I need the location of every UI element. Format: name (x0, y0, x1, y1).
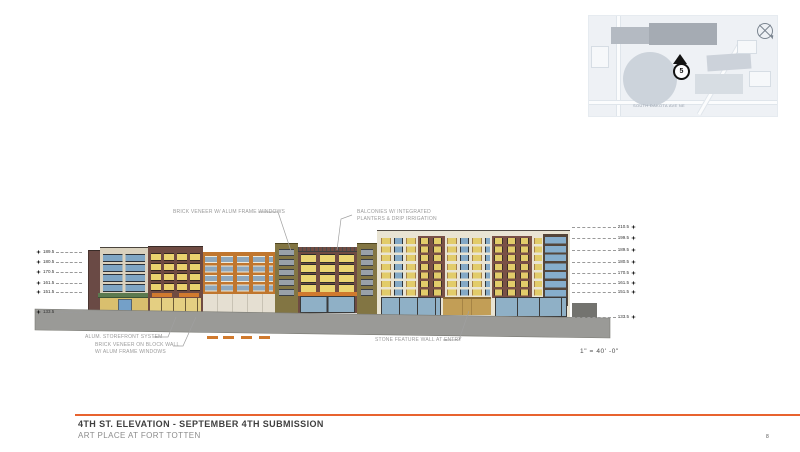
annotation-stone-wall: STONE FEATURE WALL AT ENTRY (375, 337, 462, 344)
level-marker-icon (631, 248, 636, 253)
wood-entry-feature (443, 297, 491, 315)
annotation-balconies: BALCONIES W/ INTEGRATED PLANTERS & DRIP … (357, 209, 449, 223)
orange-awning (223, 336, 234, 339)
map-pin-icon: 5 (673, 63, 690, 80)
ground-floor (377, 297, 570, 317)
annotation-storefront: ALUM. STOREFRONT SYSTEM (85, 334, 162, 341)
window-grid (205, 256, 273, 294)
level-marker-icon (36, 310, 41, 315)
annotation-brick-block-wall: BRICK VENEER ON BLOCK WALL W/ ALUM FRAME… (95, 342, 185, 356)
map-building-block (649, 23, 717, 45)
level-dash-line (572, 227, 616, 228)
elevation-value: 189.5 (617, 248, 630, 253)
level-dash-line (572, 262, 616, 263)
dark-window-tower (543, 234, 568, 306)
building-section-olive (275, 243, 298, 316)
roof-terrace-railing (298, 247, 357, 252)
level-marker-icon (631, 315, 636, 320)
level-marker-icon (36, 260, 41, 265)
leader-line (337, 215, 352, 250)
map-building-block (695, 74, 743, 94)
storefront (203, 294, 275, 315)
map-street-label: SOUTH DAKOTA AVE NE (611, 103, 707, 108)
building-section-center-maroon (298, 247, 357, 313)
level-dash-line (56, 262, 82, 263)
elevation-marker: 170.5 (572, 270, 636, 276)
window-grid (545, 237, 566, 304)
storefront (381, 297, 441, 317)
building-section-olive (357, 243, 377, 316)
key-plan-map: 5 SOUTH DAKOTA AVE NE (588, 15, 778, 117)
window-grid (494, 238, 530, 296)
annotation-brick-veneer: BRICK VENEER W/ ALUM FRAME WINDOWS (173, 209, 285, 216)
window-grid (420, 238, 443, 296)
elevation-value: 133.5 (617, 315, 630, 320)
level-dash-line (56, 272, 82, 273)
elevation-value: 199.5 (617, 236, 630, 241)
title-accent-rule (75, 414, 800, 416)
elevation-value: 170.5 (617, 271, 630, 276)
map-parcel (737, 40, 757, 54)
map-building-block (706, 52, 751, 71)
drawing-sheet: 5 SOUTH DAKOTA AVE NE (0, 0, 800, 452)
storefront (100, 298, 148, 315)
window-grid (301, 254, 354, 292)
sheet-title: 4TH ST. ELEVATION - SEPTEMBER 4TH SUBMIS… (78, 419, 324, 429)
brick-accent-strip (492, 236, 532, 298)
elevation-marker: 161.5 (572, 280, 636, 286)
level-marker-icon (36, 250, 41, 255)
level-marker-icon (631, 236, 636, 241)
orange-awning (179, 293, 199, 297)
level-marker-icon (631, 290, 636, 295)
level-dash-line (572, 250, 616, 251)
window-grid (103, 254, 145, 294)
elevation-value: 151.5 (42, 290, 55, 295)
level-dash-line (56, 312, 82, 313)
elevation-value: 133.5 (42, 310, 55, 315)
map-pin-label: 5 (680, 68, 684, 75)
orange-awning (207, 336, 218, 339)
level-marker-icon (36, 270, 41, 275)
orange-awning (152, 293, 172, 297)
window-grid (534, 238, 542, 297)
elevation-marker: 210.5 (572, 224, 636, 230)
elevation-marker: 133.5 (572, 314, 636, 320)
level-dash-line (572, 238, 616, 239)
level-dash-line (572, 292, 616, 293)
level-dash-line (572, 273, 616, 274)
elevation-value: 180.5 (617, 260, 630, 265)
window-grid (381, 238, 416, 297)
orange-awning (259, 336, 270, 339)
elevation-marker: 180.5 (36, 259, 82, 265)
scale-note: 1" = 40' -0" (580, 348, 619, 355)
elevation-value: 151.5 (617, 290, 630, 295)
elevation-value: 161.5 (617, 281, 630, 286)
elevation-marker: 133.5 (36, 309, 82, 315)
elevation-marker: 189.5 (572, 247, 636, 253)
north-arrow-icon (757, 23, 773, 39)
elevation-value: 180.5 (42, 260, 55, 265)
building-section-cream (100, 247, 148, 315)
level-marker-icon (631, 225, 636, 230)
elevation-value: 170.5 (42, 270, 55, 275)
level-dash-line (56, 283, 82, 284)
level-dash-line (56, 292, 82, 293)
storefront (150, 298, 201, 315)
elevation-value: 210.5 (617, 225, 630, 230)
building-section-tall-cream (377, 230, 570, 317)
elevation-marker: 180.5 (572, 259, 636, 265)
window-grid (279, 249, 294, 299)
elevation-value: 161.5 (42, 281, 55, 286)
storefront (300, 296, 355, 313)
level-marker-icon (631, 260, 636, 265)
storefront-door (118, 299, 132, 315)
elevation-marker: 151.5 (36, 289, 82, 295)
elevation-marker: 170.5 (36, 269, 82, 275)
map-parcel (749, 71, 771, 87)
level-dash-line (572, 283, 616, 284)
elevation-marker: 161.5 (36, 280, 82, 286)
project-name: ART PLACE AT FORT TOTTEN (78, 431, 201, 440)
level-marker-icon (631, 281, 636, 286)
page-number: 8 (766, 434, 769, 440)
building-section-orange-brick (203, 252, 275, 315)
orange-awning (241, 336, 252, 339)
level-dash-line (56, 252, 82, 253)
elevation-marker: 151.5 (572, 289, 636, 295)
map-parcel (591, 46, 609, 68)
level-marker-icon (36, 281, 41, 286)
building-section-maroon-brick (148, 246, 203, 315)
window-grid (151, 253, 200, 293)
storefront (495, 297, 567, 317)
level-dash-line (572, 317, 616, 318)
brick-accent-strip (418, 236, 445, 298)
level-marker-icon (631, 271, 636, 276)
elevation-value: 189.5 (42, 250, 55, 255)
window-grid (447, 238, 490, 297)
level-marker-icon (36, 290, 41, 295)
elevation-marker: 189.5 (36, 249, 82, 255)
map-circular-feature (623, 52, 677, 106)
window-grid (361, 249, 373, 299)
elevation-marker: 199.5 (572, 235, 636, 241)
